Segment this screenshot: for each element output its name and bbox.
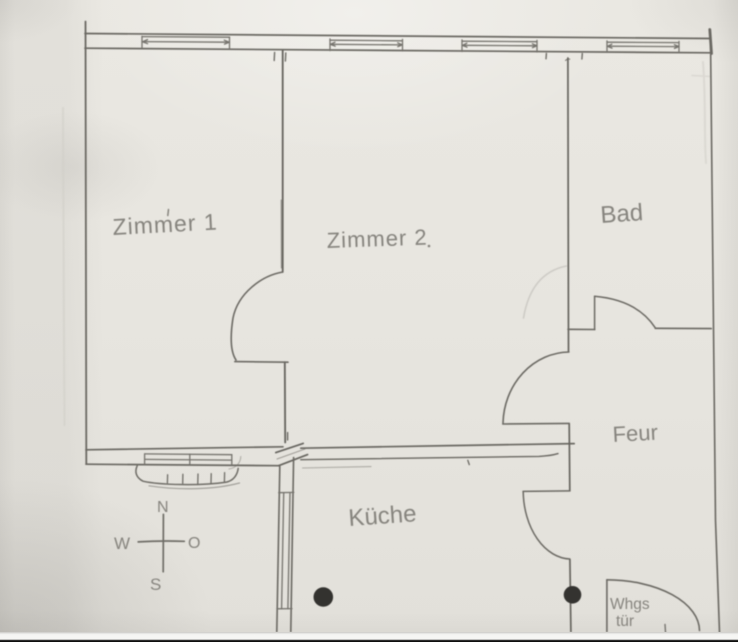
svg-text:Bad: Bad (600, 199, 644, 229)
svg-text:Küche: Küche (348, 500, 418, 532)
svg-text:W: W (114, 534, 130, 553)
svg-text:O: O (188, 535, 200, 552)
svg-text:N: N (157, 499, 169, 516)
svg-text:Zimmer 1: Zimmer 1 (112, 209, 218, 240)
svg-text:tür: tür (616, 613, 634, 630)
svg-text:Zimmer 2: Zimmer 2 (326, 224, 428, 253)
svg-text:S: S (150, 575, 161, 594)
svg-text:Feur: Feur (612, 420, 658, 447)
svg-text:Whgs: Whgs (610, 596, 650, 613)
